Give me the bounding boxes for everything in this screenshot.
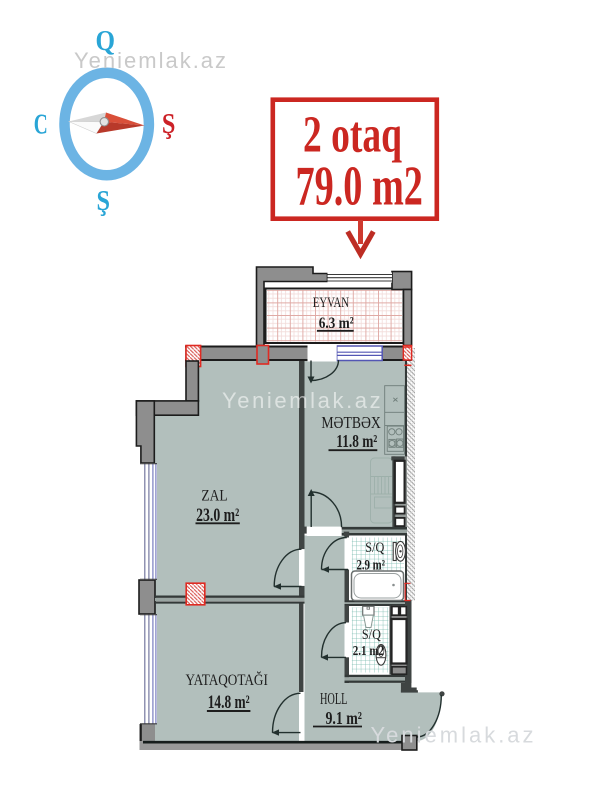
svg-text:C: C: [34, 109, 48, 141]
svg-text:2.1 m2: 2.1 m2: [353, 644, 384, 659]
svg-text:HOLL: HOLL: [320, 689, 348, 708]
svg-text:S/Q: S/Q: [365, 540, 384, 556]
svg-text:Ş: Ş: [97, 185, 111, 217]
svg-text:2.9 m²: 2.9 m²: [356, 558, 385, 574]
svg-text:14.8 m²: 14.8 m²: [208, 693, 250, 713]
svg-text:EYVAN: EYVAN: [313, 294, 349, 311]
svg-text:Yeniemlak.az: Yeniemlak.az: [222, 388, 383, 413]
svg-text:S/Q: S/Q: [362, 627, 381, 643]
svg-text:79.0 m2: 79.0 m2: [295, 156, 423, 218]
svg-text:MƏTBƏX: MƏTBƏX: [321, 413, 381, 432]
svg-text:YATAQOTAĞI: YATAQOTAĞI: [186, 670, 268, 689]
svg-text:11.8 m²: 11.8 m²: [336, 431, 377, 451]
svg-text:Yeniemlak.az: Yeniemlak.az: [74, 48, 228, 73]
svg-text:ZAL: ZAL: [201, 488, 227, 505]
svg-text:6.3 m²: 6.3 m²: [319, 315, 354, 332]
svg-text:Yeniemlak.az: Yeniemlak.az: [371, 723, 537, 748]
svg-text:9.1 m²: 9.1 m²: [325, 708, 362, 728]
svg-text:Ş: Ş: [162, 108, 176, 140]
